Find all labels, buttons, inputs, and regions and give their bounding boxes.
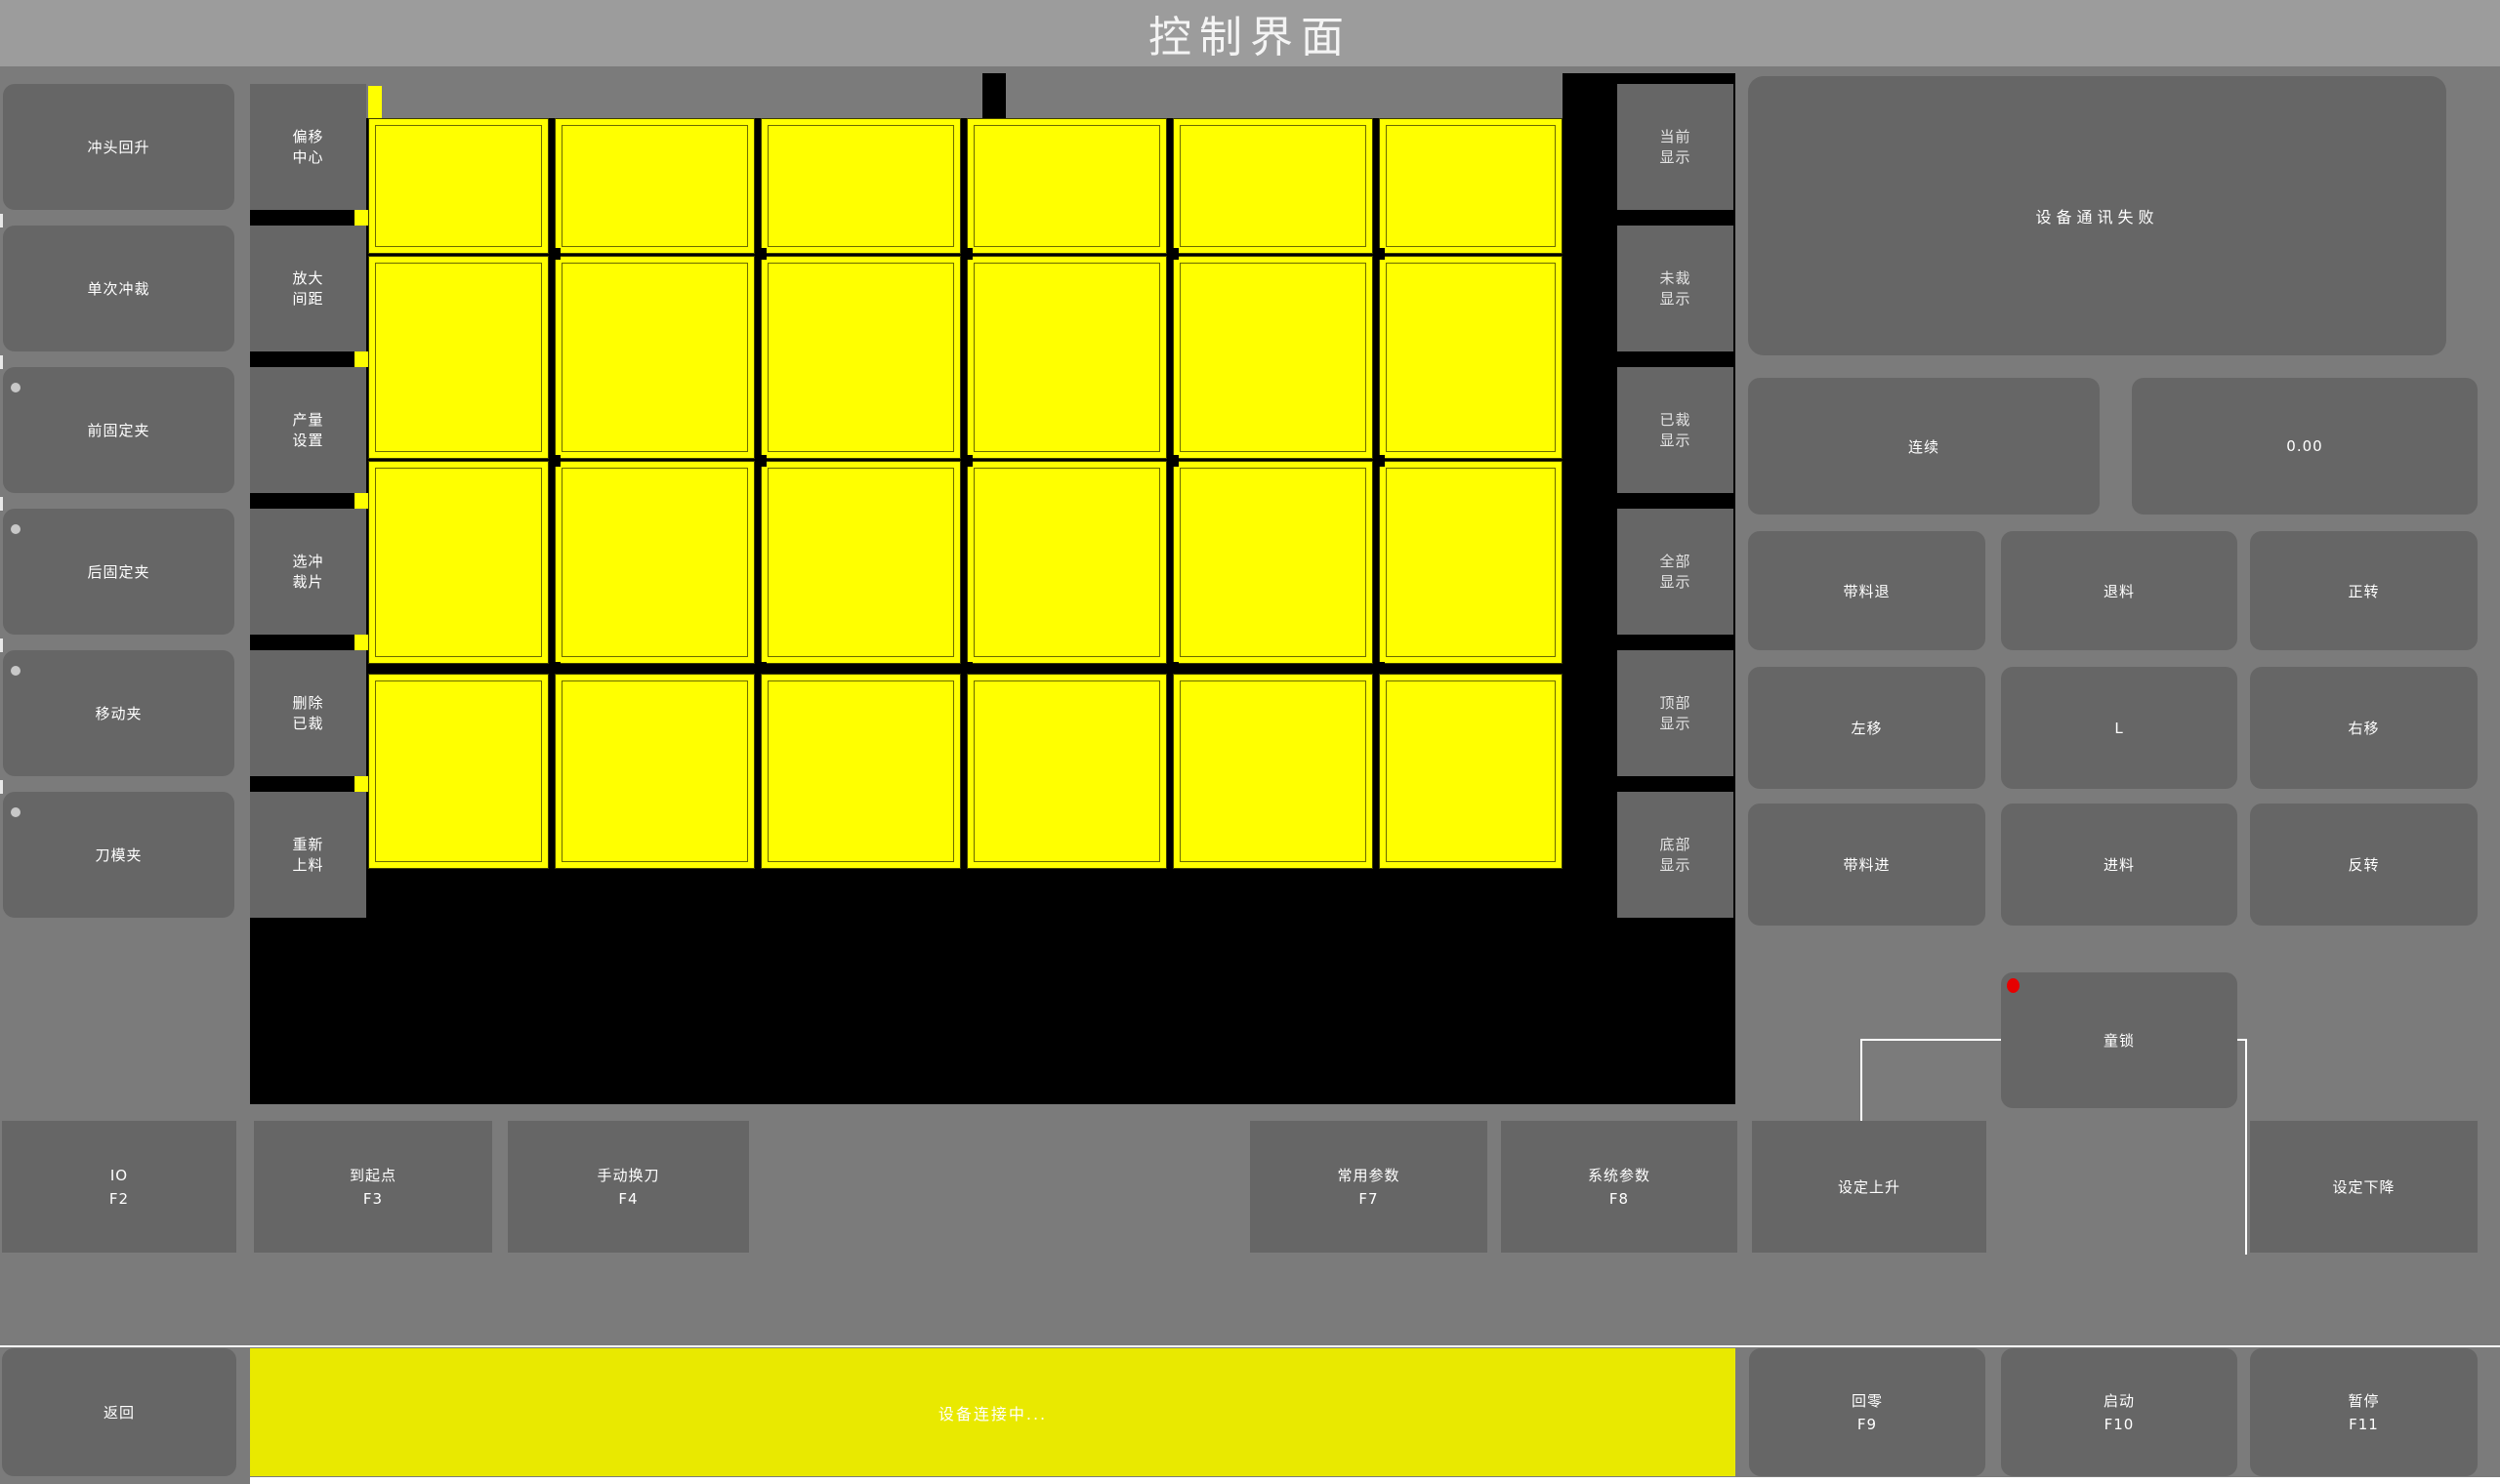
piece-tile [761,461,961,664]
piece-tile [761,118,961,254]
cut-notch [961,248,973,260]
piece-tile [967,674,1167,869]
edge-tick-mark [0,639,3,652]
display-button-1[interactable]: 当前 显示 [1617,84,1733,210]
bottom-white-strip [250,1477,2500,1484]
piece-tile [1379,461,1562,664]
piece-tile [555,118,755,254]
gap-piece-nub [354,635,368,650]
edge-tick-mark [0,355,3,369]
cut-notch [755,248,767,260]
status-indicator-dot [11,666,21,676]
jog-button-退料[interactable]: 退料 [2001,531,2237,650]
edge-tick-mark [0,214,3,227]
gap-piece-nub [354,493,368,509]
canvas-top-notch [982,73,1006,118]
cut-notch [1167,455,1179,467]
function-button-F2[interactable]: IO F2 [2,1121,236,1253]
left-button-2[interactable]: 单次冲裁 [3,226,234,351]
edge-tick-mark [0,780,3,794]
layout-canvas [250,73,1735,1104]
canvas-button-3[interactable]: 产量 设置 [250,367,366,493]
child-lock-label: 童锁 [2104,1030,2135,1051]
canvas-button-5[interactable]: 删除 已裁 [250,650,366,776]
piece-tile [555,674,755,869]
cut-notch [755,455,767,467]
left-button-3[interactable]: 前固定夹 [3,367,234,493]
feed-value: 0.00 [2286,437,2322,455]
display-button-2[interactable]: 未裁 显示 [1617,226,1733,351]
bottom-button-F11[interactable]: 暂停 F11 [2250,1348,2478,1476]
cut-notch [755,662,767,674]
jog-button-反转[interactable]: 反转 [2250,804,2478,926]
bracket-line-left [1860,1039,1862,1123]
piece-tile [368,118,549,254]
canvas-top-band [250,73,1562,118]
status-indicator-dot [11,383,21,392]
bottom-button-F9[interactable]: 回零 F9 [1749,1348,1985,1476]
jog-button-左移[interactable]: 左移 [1748,667,1985,789]
piece-tile [1173,118,1373,254]
canvas-button-6[interactable]: 重新 上料 [250,792,366,918]
piece-tile [1379,674,1562,869]
canvas-button-1[interactable]: 偏移 中心 [250,84,366,210]
cut-notch [1167,662,1179,674]
cut-notch [549,662,561,674]
gap-piece-nub [354,351,368,367]
canvas-button-4[interactable]: 选冲 裁片 [250,509,366,635]
function-button-F8[interactable]: 系统参数 F8 [1501,1121,1737,1253]
cut-notch [549,455,561,467]
cut-notch [961,455,973,467]
left-button-5[interactable]: 移动夹 [3,650,234,776]
status-indicator-dot [11,524,21,534]
bottom-button-F10[interactable]: 启动 F10 [2001,1348,2237,1476]
cut-notch [1373,455,1385,467]
piece-tile [555,256,755,459]
function-button-设定下降[interactable]: 设定下降 [2250,1121,2478,1253]
piece-tile [1379,256,1562,459]
function-button-F7[interactable]: 常用参数 F7 [1250,1121,1487,1253]
piece-tile [1173,461,1373,664]
cut-notch [1373,248,1385,260]
cut-notch [1373,662,1385,674]
piece-tile [368,674,549,869]
cut-notch [961,662,973,674]
function-button-F4[interactable]: 手动换刀 F4 [508,1121,749,1253]
cut-notch [1167,248,1179,260]
jog-button-右移[interactable]: 右移 [2250,667,2478,789]
title-bar: 控制界面 [0,0,2500,66]
edge-tick-mark [0,497,3,511]
lock-indicator-icon [2007,978,2020,993]
status-message-box: 设备通讯失败 [1748,76,2446,355]
canvas-button-2[interactable]: 放大 间距 [250,226,366,351]
left-button-4[interactable]: 后固定夹 [3,509,234,635]
jog-button-L[interactable]: L [2001,667,2237,789]
page-title: 控制界面 [1148,2,1352,64]
jog-button-进料[interactable]: 进料 [2001,804,2237,926]
left-button-6[interactable]: 刀模夹 [3,792,234,918]
status-message: 设备通讯失败 [2035,204,2158,227]
bracket-line-right [2245,1039,2247,1255]
piece-tile [1173,256,1373,459]
piece-tile [761,674,961,869]
piece-tile [368,461,549,664]
jog-button-带料进[interactable]: 带料进 [1748,804,1985,926]
connection-status-text: 设备连接中... [938,1401,1047,1424]
piece-tile [761,256,961,459]
jog-button-正转[interactable]: 正转 [2250,531,2478,650]
display-button-3[interactable]: 已裁 显示 [1617,367,1733,493]
back-label: 返回 [104,1402,135,1422]
jog-button-带料退[interactable]: 带料退 [1748,531,1985,650]
cut-notch [549,248,561,260]
piece-tile [1379,118,1562,254]
function-button-F3[interactable]: 到起点 F3 [254,1121,492,1253]
function-button-设定上升[interactable]: 设定上升 [1752,1121,1986,1253]
bottom-divider-line [0,1345,2500,1347]
control-interface-screen: 控制界面 冲头回升单次冲裁前固定夹后固定夹移动夹刀模夹 偏移 中心放大 间距产量… [0,0,2500,1484]
status-indicator-dot [11,807,21,817]
display-button-5[interactable]: 顶部 显示 [1617,650,1733,776]
piece-tile [1173,674,1373,869]
gap-piece-nub [354,776,368,792]
connection-status-bar: 设备连接中... [250,1348,1735,1476]
piece-tile [967,118,1167,254]
piece-tile [967,461,1167,664]
mode-label: 连续 [1908,436,1939,457]
piece-tile [368,256,549,459]
continuous-mode-button[interactable]: 连续 [1748,378,2100,515]
back-button[interactable]: 返回 [2,1348,236,1476]
left-button-1[interactable]: 冲头回升 [3,84,234,210]
piece-tile [967,256,1167,459]
feed-value-display: 0.00 [2132,378,2478,515]
piece-tile [555,461,755,664]
gap-piece-nub [354,210,368,226]
child-lock-button[interactable]: 童锁 [2001,972,2237,1108]
edge-piece-nub [368,86,382,118]
display-button-6[interactable]: 底部 显示 [1617,792,1733,918]
display-button-4[interactable]: 全部 显示 [1617,509,1733,635]
